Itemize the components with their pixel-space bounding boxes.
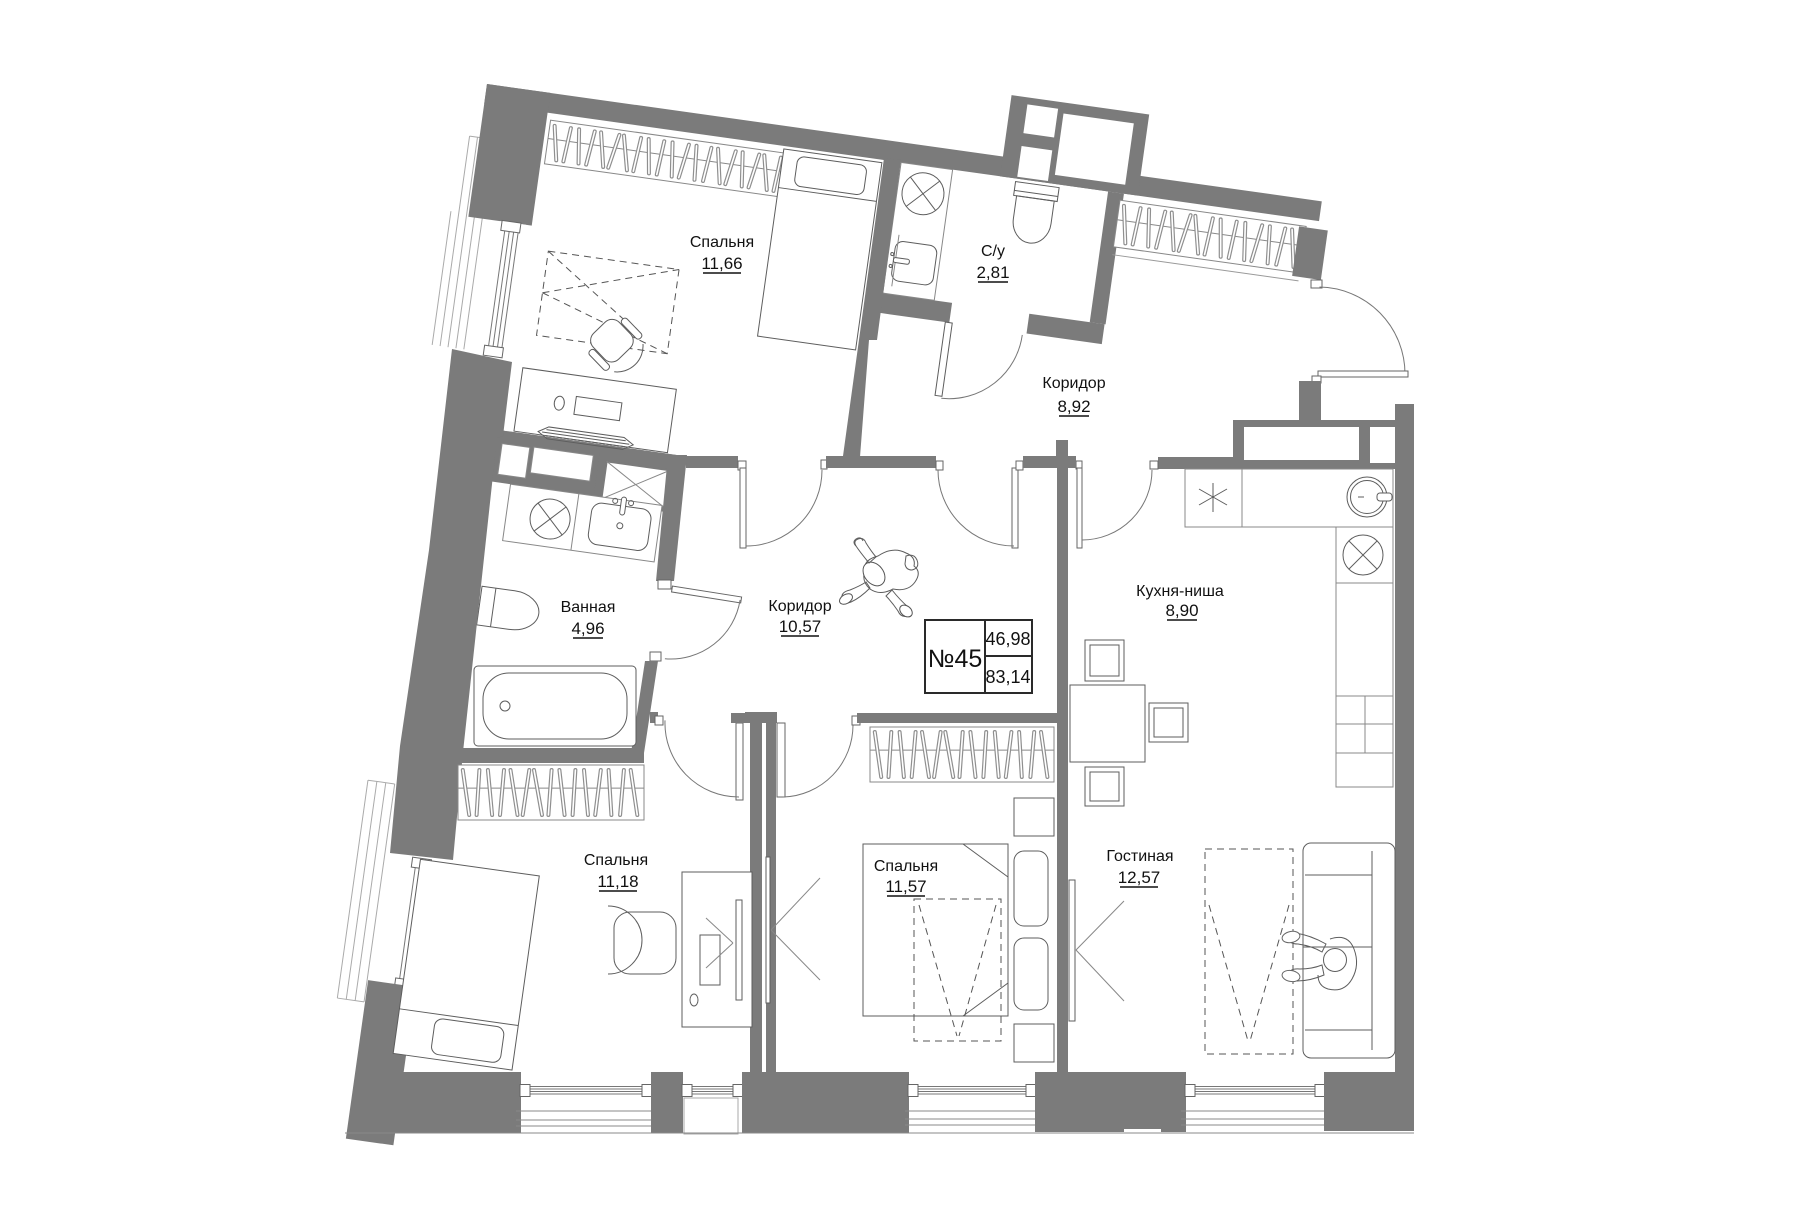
svg-text:11,66: 11,66	[701, 254, 742, 273]
svg-text:Спальня: Спальня	[690, 234, 754, 251]
svg-text:2,81: 2,81	[976, 263, 1009, 282]
svg-text:Гостиная: Гостиная	[1106, 848, 1173, 865]
svg-text:Ванная: Ванная	[561, 599, 616, 616]
svg-text:4,96: 4,96	[571, 619, 604, 638]
svg-text:12,57: 12,57	[1118, 868, 1161, 887]
svg-text:83,14: 83,14	[985, 667, 1030, 687]
svg-text:10,57: 10,57	[779, 617, 822, 636]
svg-text:11,18: 11,18	[597, 872, 638, 891]
svg-text:Коридор: Коридор	[1042, 375, 1105, 392]
svg-text:8,90: 8,90	[1165, 601, 1198, 620]
svg-text:11,57: 11,57	[885, 877, 926, 896]
svg-text:Коридор: Коридор	[768, 598, 831, 615]
svg-text:46,98: 46,98	[985, 629, 1030, 649]
svg-text:№45: №45	[928, 645, 983, 673]
svg-text:Спальня: Спальня	[874, 858, 938, 875]
svg-text:Спальня: Спальня	[584, 852, 648, 869]
svg-text:8,92: 8,92	[1057, 397, 1090, 416]
svg-text:С/у: С/у	[981, 243, 1005, 260]
svg-text:Кухня-ниша: Кухня-ниша	[1136, 583, 1224, 600]
